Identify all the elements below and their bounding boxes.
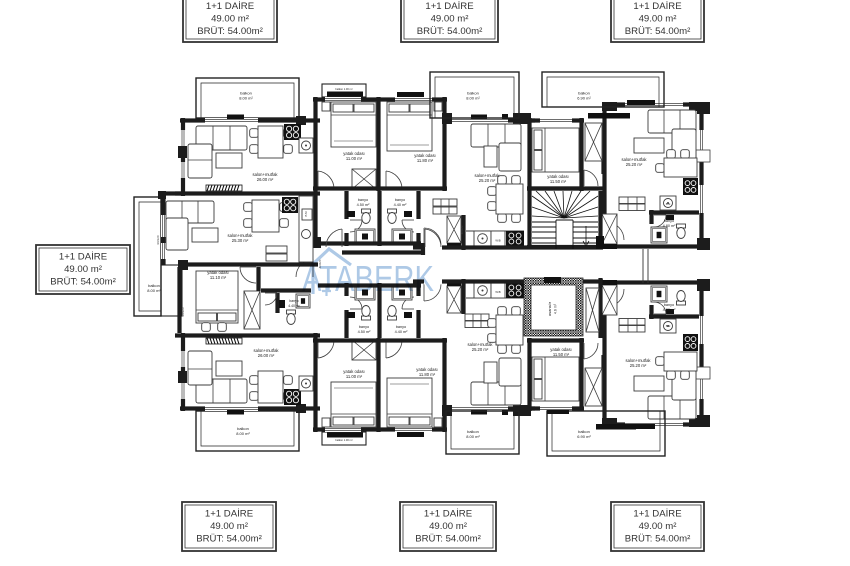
svg-text:BRÜT: 54.00m²: BRÜT: 54.00m² <box>197 26 263 37</box>
svg-text:1+1 DAİRE: 1+1 DAİRE <box>206 1 254 12</box>
svg-text:BRÜT: 54.00m²: BRÜT: 54.00m² <box>625 534 691 545</box>
svg-text:49.00 m²: 49.00 m² <box>639 521 678 532</box>
svg-text:1+1 DAİRE: 1+1 DAİRE <box>424 509 472 520</box>
svg-text:49.00 m²: 49.00 m² <box>64 264 103 275</box>
svg-text:W/B: W/B <box>495 290 500 294</box>
svg-text:49.00 m²: 49.00 m² <box>210 521 249 532</box>
svg-text:1+1 DAİRE: 1+1 DAİRE <box>633 509 681 520</box>
svg-text:BRÜT: 54.00m²: BRÜT: 54.00m² <box>625 26 691 37</box>
svg-text:B.M: B.M <box>666 324 671 328</box>
svg-text:1+1 DAİRE: 1+1 DAİRE <box>425 1 473 12</box>
svg-text:4.40 m²: 4.40 m² <box>288 304 300 308</box>
svg-text:1+1 DAİRE: 1+1 DAİRE <box>59 252 107 263</box>
svg-text:25.30 m²: 25.30 m² <box>232 238 249 243</box>
svg-text:11.50 m²: 11.50 m² <box>550 179 567 184</box>
svg-text:4.80 m²: 4.80 m² <box>663 224 677 228</box>
svg-text:asansör: asansör <box>547 301 552 316</box>
svg-text:4.40 m²: 4.40 m² <box>394 203 408 207</box>
svg-text:90/220: 90/220 <box>156 235 160 245</box>
svg-text:BRÜT: 54.00m²: BRÜT: 54.00m² <box>415 534 481 545</box>
svg-text:25.20 m²: 25.20 m² <box>630 363 647 368</box>
svg-text:6.90 m²: 6.90 m² <box>577 96 591 101</box>
svg-text:balkon 1.00 m²: balkon 1.00 m² <box>335 87 352 91</box>
svg-text:banyo: banyo <box>358 198 368 202</box>
svg-text:banyo: banyo <box>289 299 298 303</box>
svg-text:banyo: banyo <box>664 219 674 223</box>
svg-text:49.00 m²: 49.00 m² <box>639 14 678 25</box>
svg-text:49.00 m²: 49.00 m² <box>429 521 468 532</box>
svg-text:80/220: 80/220 <box>460 225 464 234</box>
svg-text:balkon 1.00 m²: balkon 1.00 m² <box>335 438 352 442</box>
svg-text:25.20 m²: 25.20 m² <box>479 178 496 183</box>
svg-text:4.50 m²: 4.50 m² <box>357 203 371 207</box>
svg-text:26.00 m²: 26.00 m² <box>258 353 275 358</box>
svg-text:8.00 m²: 8.00 m² <box>239 96 253 101</box>
svg-text:W/B: W/B <box>495 239 500 243</box>
svg-text:8.00 m²: 8.00 m² <box>147 288 161 293</box>
svg-text:90/220: 90/220 <box>181 307 185 317</box>
svg-text:4.80 m²: 4.80 m² <box>663 308 677 312</box>
svg-text:11.50 m²: 11.50 m² <box>553 352 570 357</box>
svg-text:1+1 DAİRE: 1+1 DAİRE <box>205 509 253 520</box>
svg-text:8.00 m²: 8.00 m² <box>466 434 480 439</box>
svg-text:26.00 m²: 26.00 m² <box>257 177 274 182</box>
svg-text:banyo: banyo <box>664 303 674 307</box>
svg-text:25.20 m²: 25.20 m² <box>472 347 489 352</box>
svg-text:ATABERK: ATABERK <box>302 258 434 299</box>
svg-text:1+1 DAİRE: 1+1 DAİRE <box>633 1 681 12</box>
svg-text:25.20 m²: 25.20 m² <box>626 162 643 167</box>
svg-text:banyo: banyo <box>359 325 369 329</box>
svg-text:11.00 m²: 11.00 m² <box>346 156 363 161</box>
svg-text:11.10 m²: 11.10 m² <box>210 275 227 280</box>
svg-text:8.00 m²: 8.00 m² <box>236 431 250 436</box>
svg-text:8.00 m²: 8.00 m² <box>466 96 480 101</box>
svg-text:B.M: B.M <box>666 202 671 206</box>
svg-text:BRÜT: 54.00m²: BRÜT: 54.00m² <box>50 277 116 288</box>
svg-text:BRÜT: 54.00m²: BRÜT: 54.00m² <box>417 26 483 37</box>
svg-text:banyo: banyo <box>396 325 406 329</box>
svg-text:6.90 m²: 6.90 m² <box>577 434 591 439</box>
svg-text:49.00 m²: 49.00 m² <box>431 14 470 25</box>
svg-text:4.50 m²: 4.50 m² <box>358 330 372 334</box>
svg-text:4.40 m²: 4.40 m² <box>395 330 409 334</box>
svg-text:11.00 m²: 11.00 m² <box>346 374 363 379</box>
svg-text:11.80 m²: 11.80 m² <box>419 372 436 377</box>
svg-text:4.6 m²: 4.6 m² <box>554 303 558 314</box>
svg-text:11.80 m²: 11.80 m² <box>417 158 434 163</box>
svg-text:banyo: banyo <box>395 198 405 202</box>
svg-text:BRÜT: 54.00m²: BRÜT: 54.00m² <box>196 534 262 545</box>
svg-text:B.M: B.M <box>304 211 308 217</box>
svg-text:49.00 m²: 49.00 m² <box>211 14 250 25</box>
